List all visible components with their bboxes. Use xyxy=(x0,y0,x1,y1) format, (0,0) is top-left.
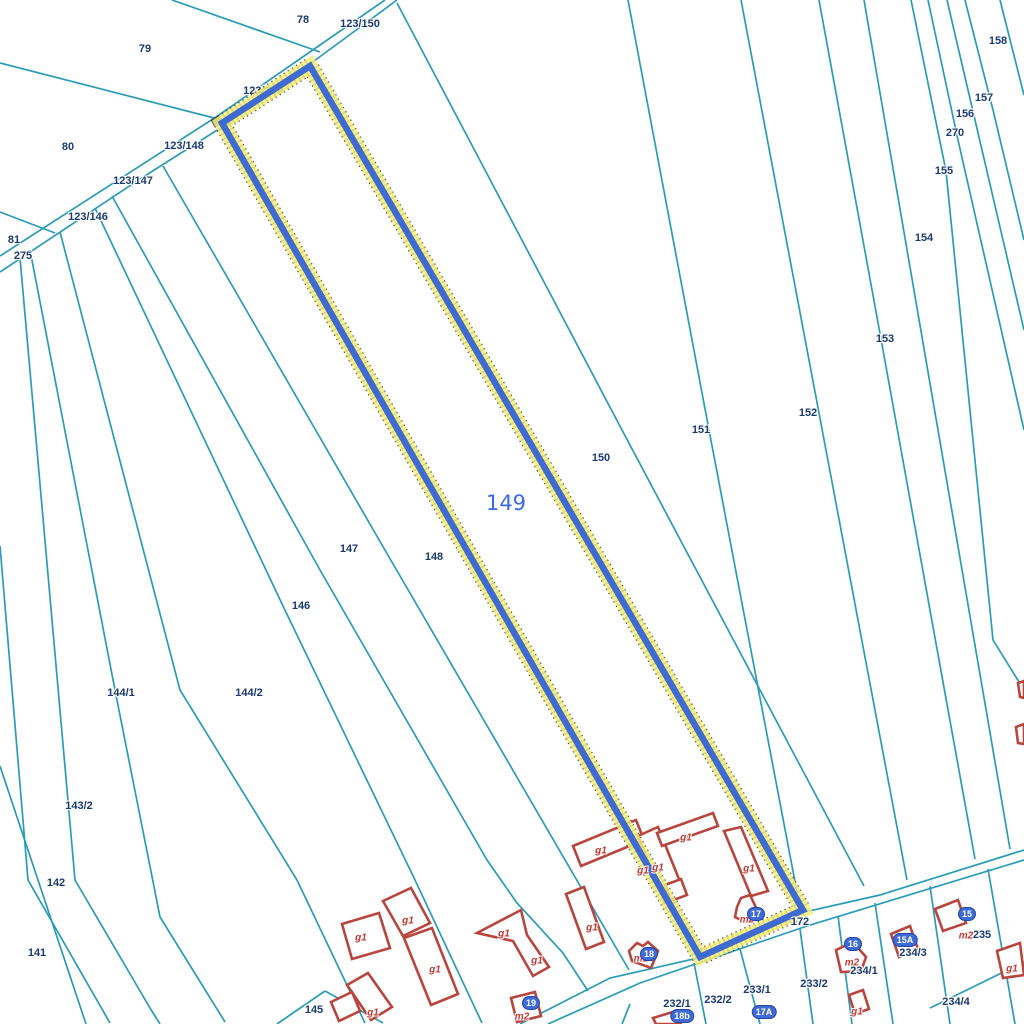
parcel-boundary-line xyxy=(694,963,706,1024)
parcel-boundary-line xyxy=(172,0,320,52)
parcel-boundary-line xyxy=(819,0,975,859)
parcel-boundary-line xyxy=(112,196,588,991)
building-outline xyxy=(836,942,866,972)
building-outline xyxy=(735,895,759,922)
parcel-boundary-line xyxy=(0,212,55,233)
parcel-boundary-line xyxy=(277,991,325,1024)
building-outline xyxy=(342,913,390,959)
parcel-boundary-line xyxy=(875,903,893,1024)
parcel-boundary-line xyxy=(0,766,86,1024)
cadastral-map-svg: 123/149 xyxy=(0,0,1024,1024)
buildings-group xyxy=(331,681,1024,1024)
building-outline xyxy=(935,900,966,931)
building-outline xyxy=(404,928,458,1005)
parcel-boundary-line xyxy=(0,546,110,1023)
parcel-boundary-line xyxy=(911,0,1024,690)
parcel-boundary-line xyxy=(163,166,629,970)
parcel-boundary-line xyxy=(20,258,160,1024)
building-outline xyxy=(1018,681,1024,698)
map-canvas[interactable]: 123/149 149 78123/1507980123/148123/1471… xyxy=(0,0,1024,1024)
parcel-boundary-line xyxy=(740,949,760,1024)
parcel-boundary-line xyxy=(800,929,813,1024)
parcel-boundary-line xyxy=(622,1004,630,1024)
parcel-boundary-line xyxy=(928,0,1024,430)
building-outline xyxy=(657,813,718,846)
building-outline xyxy=(511,992,541,1022)
building-outline xyxy=(997,943,1024,978)
building-outline xyxy=(891,926,918,957)
parcel-boundary-line xyxy=(741,0,907,880)
building-outline xyxy=(849,990,869,1014)
parcel-boundary-line xyxy=(0,63,218,119)
building-outline xyxy=(653,1011,681,1024)
parcel-boundary-lines-group xyxy=(0,0,1024,1024)
parcel-boundary-line xyxy=(1000,0,1024,95)
building-outline xyxy=(1016,724,1024,744)
parcel-boundary-line xyxy=(397,3,864,886)
building-outline xyxy=(477,910,549,976)
parcel-boundary-line xyxy=(0,0,397,272)
parcel-boundary-line xyxy=(60,232,365,1023)
building-outline xyxy=(629,942,658,968)
parcel-boundary-line xyxy=(30,250,225,1022)
